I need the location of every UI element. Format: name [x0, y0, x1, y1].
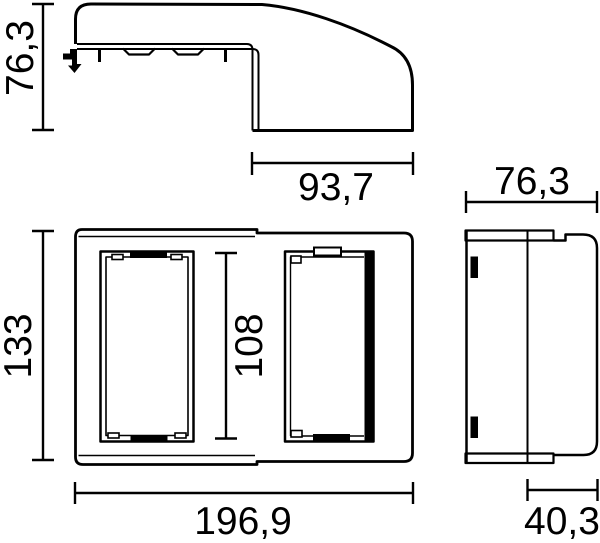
dim-side-base-depth-label: 40,3 — [524, 500, 600, 543]
profile-baseplate-lower-line — [77, 49, 259, 131]
dim-side-base-depth: 40,3 — [524, 479, 600, 543]
front-right-opening-frame — [285, 252, 374, 442]
front-left-opening-top-tab — [130, 252, 167, 259]
dim-profile-height-label: 76,3 — [0, 20, 42, 96]
side-base-outline — [554, 235, 598, 456]
front-left-opening-notch-br — [175, 433, 186, 438]
front-right-opening-inner-frame — [291, 257, 365, 436]
front-right-opening-top-tab — [314, 248, 341, 256]
side-bottom-flange — [466, 454, 554, 464]
dim-front-opening-height-label: 108 — [228, 313, 271, 378]
side-latch-mark-top — [471, 257, 479, 279]
front-left-opening-frame — [101, 252, 194, 442]
profile-mounting-clip — [63, 49, 82, 73]
dim-side-depth: 76,3 — [466, 160, 597, 213]
dim-front-opening-height: 108 — [215, 253, 271, 439]
front-right-opening-notch-tl — [291, 256, 301, 263]
front-right-opening-side-band — [365, 252, 374, 442]
dim-front-height-label: 133 — [0, 313, 40, 378]
dim-profile-front-depth: 93,7 — [252, 152, 413, 209]
dim-profile-height: 76,3 — [0, 4, 54, 130]
front-left-opening-notch-bl — [108, 433, 119, 438]
dim-side-depth-label: 76,3 — [494, 160, 570, 203]
drawing-canvas: 76,3 93,7 — [0, 0, 600, 543]
profile-cover-outline — [76, 4, 413, 131]
front-right-opening-notch-bl — [291, 431, 302, 438]
front-left-opening-notch-tl — [112, 255, 123, 260]
dim-side-base-depth-line — [528, 479, 598, 501]
front-left-opening-inner-frame — [106, 257, 188, 436]
front-right-opening — [285, 248, 374, 442]
view-side — [466, 231, 598, 464]
technical-drawing: 76,3 93,7 — [0, 0, 600, 543]
front-left-opening — [101, 252, 194, 442]
dim-profile-front-depth-label: 93,7 — [298, 166, 374, 209]
front-left-opening-notch-tr — [171, 255, 182, 260]
dim-front-width: 196,9 — [75, 482, 413, 543]
view-side-profile — [63, 4, 413, 131]
front-left-opening-bottom-tab — [131, 435, 168, 442]
side-latch-mark-bottom — [471, 417, 479, 439]
dim-front-width-label: 196,9 — [194, 500, 292, 543]
front-right-opening-bottom-tab — [313, 434, 350, 441]
dim-front-height: 133 — [0, 231, 54, 460]
side-top-flange — [466, 231, 554, 241]
